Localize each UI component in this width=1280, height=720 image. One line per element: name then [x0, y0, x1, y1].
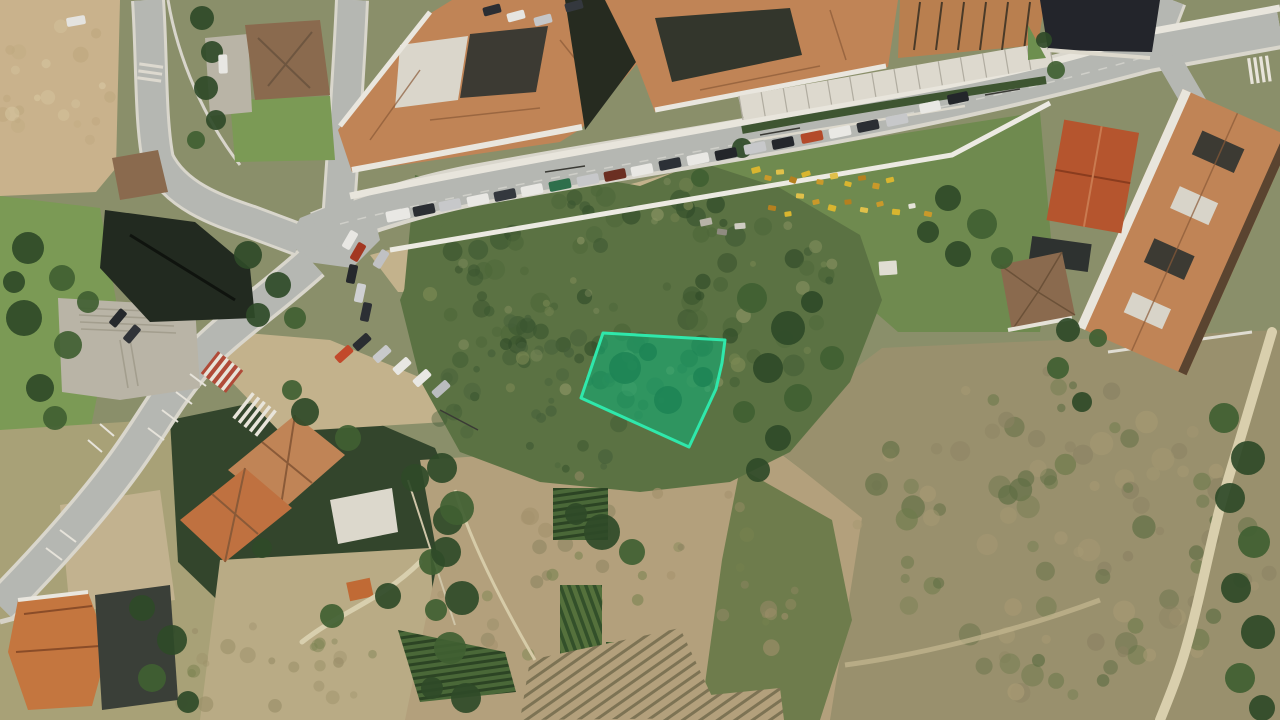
terrain-mottle [268, 657, 275, 664]
terrain-mottle [1262, 566, 1277, 581]
tree [77, 291, 99, 313]
terrain-mottle [556, 368, 569, 381]
terrain-mottle [1177, 466, 1189, 478]
terrain-mottle [923, 509, 940, 526]
tree [194, 76, 218, 100]
terrain-mottle [1156, 527, 1165, 536]
debris-item [892, 209, 901, 216]
terrain-mottle [577, 440, 589, 452]
terrain-mottle [468, 240, 488, 260]
road-hatch-topleft [137, 62, 163, 82]
terrain-mottle [458, 339, 469, 350]
terrain-mottle [334, 651, 347, 664]
terrain-mottle [1073, 445, 1093, 465]
debris-item [796, 193, 804, 199]
terrain-mottle [570, 329, 587, 346]
terrain-mottle [538, 523, 553, 538]
tree [565, 503, 587, 525]
terrain-mottle [468, 264, 480, 276]
terrain-mottle [473, 366, 480, 373]
terrain-mottle [593, 308, 599, 314]
terrain-mottle [187, 665, 200, 678]
tree [282, 380, 302, 400]
terrain-mottle [1050, 379, 1067, 396]
terrain-mottle [1250, 581, 1259, 590]
tree [246, 303, 270, 327]
terrain-mottle [651, 208, 664, 221]
terrain-mottle [1069, 381, 1077, 389]
terrain-mottle [791, 587, 799, 595]
terrain-mottle [74, 120, 82, 128]
terrain-mottle [249, 622, 257, 630]
tree [1221, 573, 1251, 603]
terrain-mottle [332, 638, 338, 644]
tree [291, 398, 319, 426]
tree [1238, 526, 1270, 558]
terrain-mottle [985, 424, 1000, 439]
terrain-mottle [506, 383, 515, 392]
tree [801, 291, 823, 313]
terrain-mottle [762, 618, 769, 625]
terrain-mottle [977, 534, 998, 555]
tree [252, 538, 272, 558]
tree [43, 406, 67, 430]
terrain-mottle [524, 315, 531, 322]
dark-building-topright [1040, 0, 1160, 52]
terrain-mottle [683, 286, 702, 305]
tree [1047, 357, 1069, 379]
terrain-mottle [34, 95, 41, 102]
terrain-mottle [998, 412, 1014, 428]
terrain-mottle [901, 574, 910, 583]
terrain-mottle [1103, 660, 1118, 675]
tree [265, 272, 291, 298]
terrain-mottle [350, 691, 357, 698]
terrain-mottle [1193, 473, 1211, 491]
tree [320, 604, 344, 628]
tree [1072, 392, 1092, 412]
terrain-mottle [933, 578, 944, 589]
terrain-mottle [1097, 674, 1110, 687]
terrain-mottle [533, 324, 549, 340]
terrain-mottle [1196, 495, 1209, 508]
terrain-mottle [544, 340, 559, 355]
terrain-mottle [679, 178, 693, 192]
terrain-mottle [750, 261, 756, 267]
terrain-mottle [638, 571, 647, 580]
tree [1241, 615, 1275, 649]
terrain-mottle [545, 378, 553, 386]
debris-item [734, 223, 745, 230]
tree [1249, 695, 1275, 720]
terrain-mottle [667, 571, 676, 580]
terrain-mottle [729, 353, 741, 365]
satellite-map-viewport[interactable] [0, 0, 1280, 720]
tree [440, 491, 474, 525]
terrain-mottle [1073, 547, 1083, 557]
terrain-mottle [1027, 541, 1038, 552]
terrain-mottle [976, 658, 993, 675]
terrain-mottle [825, 277, 833, 285]
tree [451, 683, 481, 713]
terrain-mottle [1087, 633, 1105, 651]
terrain-mottle [804, 347, 811, 354]
terrain-mottle [551, 194, 567, 210]
terrain-mottle [1068, 689, 1079, 700]
terrain-mottle [1123, 483, 1133, 493]
terrain-mottle [5, 45, 15, 55]
terrain-mottle [1000, 507, 1017, 524]
tree [284, 307, 306, 329]
tree [431, 537, 461, 567]
terrain-mottle [686, 310, 708, 332]
terrain-mottle [555, 462, 561, 468]
terrain-mottle [1042, 635, 1051, 644]
terrain-mottle [827, 259, 838, 270]
terrain-mottle [950, 441, 970, 461]
debris-item [776, 169, 784, 175]
terrain-mottle [1054, 531, 1067, 544]
terrain-mottle [532, 540, 547, 555]
tree [49, 265, 75, 291]
tree [945, 241, 971, 267]
terrain-mottle [1095, 569, 1110, 584]
terrain-mottle [1057, 404, 1065, 412]
terrain-mottle [1090, 481, 1100, 491]
tree [1089, 329, 1107, 347]
block-a-courtyard-dark [460, 26, 548, 98]
house-topleft-roof [245, 20, 330, 100]
small-roof-left [112, 150, 168, 200]
terrain-mottle [1090, 432, 1113, 455]
terrain-mottle [632, 594, 644, 606]
terrain-mottle [1007, 683, 1024, 700]
terrain-mottle [1032, 654, 1045, 667]
terrain-mottle [853, 520, 863, 530]
terrain-mottle [896, 508, 918, 530]
terrain-mottle [564, 347, 574, 357]
terrain-mottle [575, 552, 583, 560]
tree [177, 691, 199, 713]
terrain-mottle [1151, 448, 1174, 471]
terrain-mottle [904, 479, 919, 494]
terrain-mottle [492, 327, 502, 337]
terrain-mottle [443, 241, 463, 261]
terrain-mottle [781, 613, 788, 620]
terrain-mottle [1004, 598, 1022, 616]
terrain-mottle [504, 306, 512, 314]
tree [784, 384, 812, 412]
terrain-mottle [988, 394, 1000, 406]
terrain-mottle [547, 569, 559, 581]
terrain-mottle [1120, 429, 1139, 448]
terrain-mottle [311, 639, 324, 652]
terrain-mottle [609, 303, 618, 312]
terrain-mottle [585, 289, 593, 297]
terrain-mottle [713, 277, 728, 292]
terrain-mottle [313, 681, 324, 692]
tree [1047, 61, 1065, 79]
tree [138, 664, 166, 692]
tree [733, 401, 755, 423]
terrain-mottle [736, 563, 745, 572]
terrain-mottle [901, 556, 914, 569]
terrain-mottle [577, 237, 585, 245]
tree [375, 583, 401, 609]
debris-item [879, 260, 898, 275]
terrain-mottle [11, 66, 20, 75]
terrain-mottle [544, 307, 554, 317]
tree [820, 346, 844, 370]
terrain-mottle [1036, 562, 1055, 581]
car [218, 54, 228, 73]
terrain-mottle [1118, 646, 1129, 657]
terrain-mottle [1187, 426, 1199, 438]
terrain-mottle [754, 218, 772, 236]
tree [54, 331, 82, 359]
terrain-mottle [504, 314, 518, 328]
terrain-mottle [91, 28, 101, 38]
terrain-mottle [1048, 673, 1064, 689]
tree [3, 271, 25, 293]
terrain-mottle [931, 443, 942, 454]
terrain-mottle [670, 213, 679, 222]
terrain-mottle [562, 465, 570, 473]
terrain-mottle [530, 575, 543, 588]
terrain-mottle [41, 90, 56, 105]
tree [12, 232, 44, 264]
terrain-mottle [741, 581, 749, 589]
terrain-mottle [485, 259, 505, 279]
terrain-mottle [203, 660, 210, 667]
tree [584, 514, 620, 550]
terrain-mottle [58, 109, 70, 121]
terrain-mottle [520, 267, 529, 276]
terrain-mottle [3, 95, 11, 103]
terrain-mottle [693, 226, 710, 243]
terrain-mottle [531, 409, 541, 419]
terrain-mottle [663, 282, 671, 290]
terrain-mottle [719, 219, 727, 227]
tree [206, 110, 226, 130]
tree [234, 241, 262, 269]
terrain-mottle [1132, 515, 1155, 538]
terrain-mottle [785, 599, 796, 610]
terrain-mottle [444, 308, 458, 322]
terrain-mottle [575, 471, 585, 481]
terrain-mottle [579, 201, 590, 212]
tree [746, 458, 770, 482]
terrain-mottle [548, 398, 554, 404]
terrain-mottle [707, 227, 717, 237]
terrain-mottle [730, 377, 740, 387]
tree [427, 453, 457, 483]
terrain-mottle [882, 441, 900, 459]
terrain-mottle [104, 91, 115, 102]
tree [737, 283, 767, 313]
terrain-mottle [560, 383, 572, 395]
terrain-mottle [1135, 411, 1158, 434]
terrain-mottle [1128, 618, 1144, 634]
satellite-map-canvas[interactable] [0, 0, 1280, 720]
terrain-mottle [42, 59, 51, 68]
terrain-mottle [740, 527, 755, 542]
terrain-mottle [1206, 609, 1221, 624]
tree [753, 353, 783, 383]
terrain-mottle [85, 135, 95, 145]
terrain-mottle [695, 274, 710, 289]
terrain-mottle [368, 650, 377, 659]
terrain-mottle [268, 699, 282, 713]
terrain-mottle [464, 383, 481, 400]
terrain-mottle [600, 463, 607, 470]
terrain-mottle [1103, 383, 1120, 400]
tree [935, 185, 961, 211]
terrain-mottle [521, 511, 535, 525]
tree [129, 595, 155, 621]
terrain-mottle [920, 486, 936, 502]
debris-item [844, 199, 851, 205]
terrain-mottle [198, 696, 214, 712]
terrain-mottle [1017, 495, 1040, 518]
terrain-mottle [482, 591, 493, 602]
terrain-mottle [73, 47, 89, 63]
terrain-mottle [326, 691, 340, 705]
terrain-mottle [1000, 653, 1021, 674]
terrain-mottle [783, 221, 792, 230]
terrain-mottle [452, 352, 468, 368]
tree [434, 632, 466, 664]
terrain-mottle [546, 406, 557, 417]
terrain-mottle [598, 449, 613, 464]
tree [1209, 403, 1239, 433]
terrain-mottle [71, 99, 80, 108]
block-a-courtyard-white [395, 36, 468, 108]
tree [1056, 318, 1080, 342]
tree [619, 539, 645, 565]
terrain-mottle [530, 349, 542, 361]
terrain-mottle [567, 200, 576, 209]
tree [445, 581, 479, 615]
terrain-mottle [92, 117, 101, 126]
terrain-mottle [220, 639, 235, 654]
tree [1225, 663, 1255, 693]
terrain-mottle [458, 259, 468, 269]
terrain-mottle [99, 82, 106, 89]
terrain-mottle [652, 488, 663, 499]
terrain-mottle [763, 639, 780, 656]
terrain-mottle [961, 386, 970, 395]
tree [1036, 32, 1052, 48]
terrain-mottle [596, 560, 609, 573]
terrain-mottle [1133, 497, 1150, 514]
terrain-mottle [678, 544, 685, 551]
terrain-mottle [453, 404, 460, 411]
terrain-mottle [735, 502, 745, 512]
tree [6, 300, 42, 336]
terrain-mottle [821, 261, 827, 267]
terrain-mottle [570, 277, 577, 284]
terrain-mottle [516, 351, 529, 364]
tree [691, 169, 709, 187]
terrain-mottle [988, 476, 1011, 499]
terrain-mottle [1021, 664, 1044, 687]
debris-item [872, 182, 880, 189]
tree [421, 677, 443, 699]
terrain-mottle [1189, 545, 1204, 560]
terrain-mottle [488, 349, 496, 357]
terrain-mottle [15, 117, 21, 123]
terrain-mottle [664, 178, 671, 185]
terrain-mottle [865, 473, 888, 496]
tree [190, 6, 214, 30]
terrain-mottle [596, 187, 616, 207]
tree [26, 374, 54, 402]
tree [771, 311, 805, 345]
terrain-mottle [288, 662, 299, 673]
terrain-mottle [593, 238, 608, 253]
terrain-mottle [487, 618, 499, 630]
terrain-mottle [240, 647, 256, 663]
terrain-mottle [526, 442, 534, 450]
terrain-mottle [799, 261, 814, 276]
tree [157, 625, 187, 655]
terrain-mottle [1028, 430, 1045, 447]
terrain-mottle [574, 354, 584, 364]
tree [765, 425, 791, 451]
tree [1215, 483, 1245, 513]
terrain-mottle [1123, 551, 1134, 562]
debris-item [816, 179, 824, 185]
terrain-mottle [1209, 464, 1224, 479]
tree [187, 131, 205, 149]
terrain-mottle [900, 596, 918, 614]
terrain-mottle [1109, 422, 1120, 433]
terrain-mottle [543, 300, 550, 307]
debris-item [784, 211, 792, 217]
tree [967, 209, 997, 239]
terrain-mottle [1018, 470, 1035, 487]
terrain-mottle [192, 628, 198, 634]
terrain-mottle [502, 350, 518, 366]
terrain-mottle [1055, 454, 1076, 475]
terrain-mottle [314, 660, 325, 671]
terrain-mottle [1159, 606, 1182, 629]
tree [1231, 441, 1265, 475]
terrain-mottle [1143, 649, 1156, 662]
terrain-mottle [423, 287, 437, 301]
terrain-mottle [507, 234, 523, 250]
tree [425, 599, 447, 621]
terrain-mottle [717, 253, 737, 273]
terrain-mottle [500, 338, 512, 350]
tree [335, 425, 361, 451]
tree [917, 221, 939, 243]
terrain-mottle [783, 355, 805, 377]
terrain-mottle [809, 240, 822, 253]
tree [991, 247, 1013, 269]
terrain-mottle [724, 491, 732, 499]
terrain-mottle [54, 20, 68, 34]
tree [401, 464, 429, 492]
terrain-mottle [809, 315, 824, 330]
terrain-mottle [476, 336, 487, 347]
terrain-mottle [717, 609, 730, 622]
terrain-mottle [473, 300, 491, 318]
